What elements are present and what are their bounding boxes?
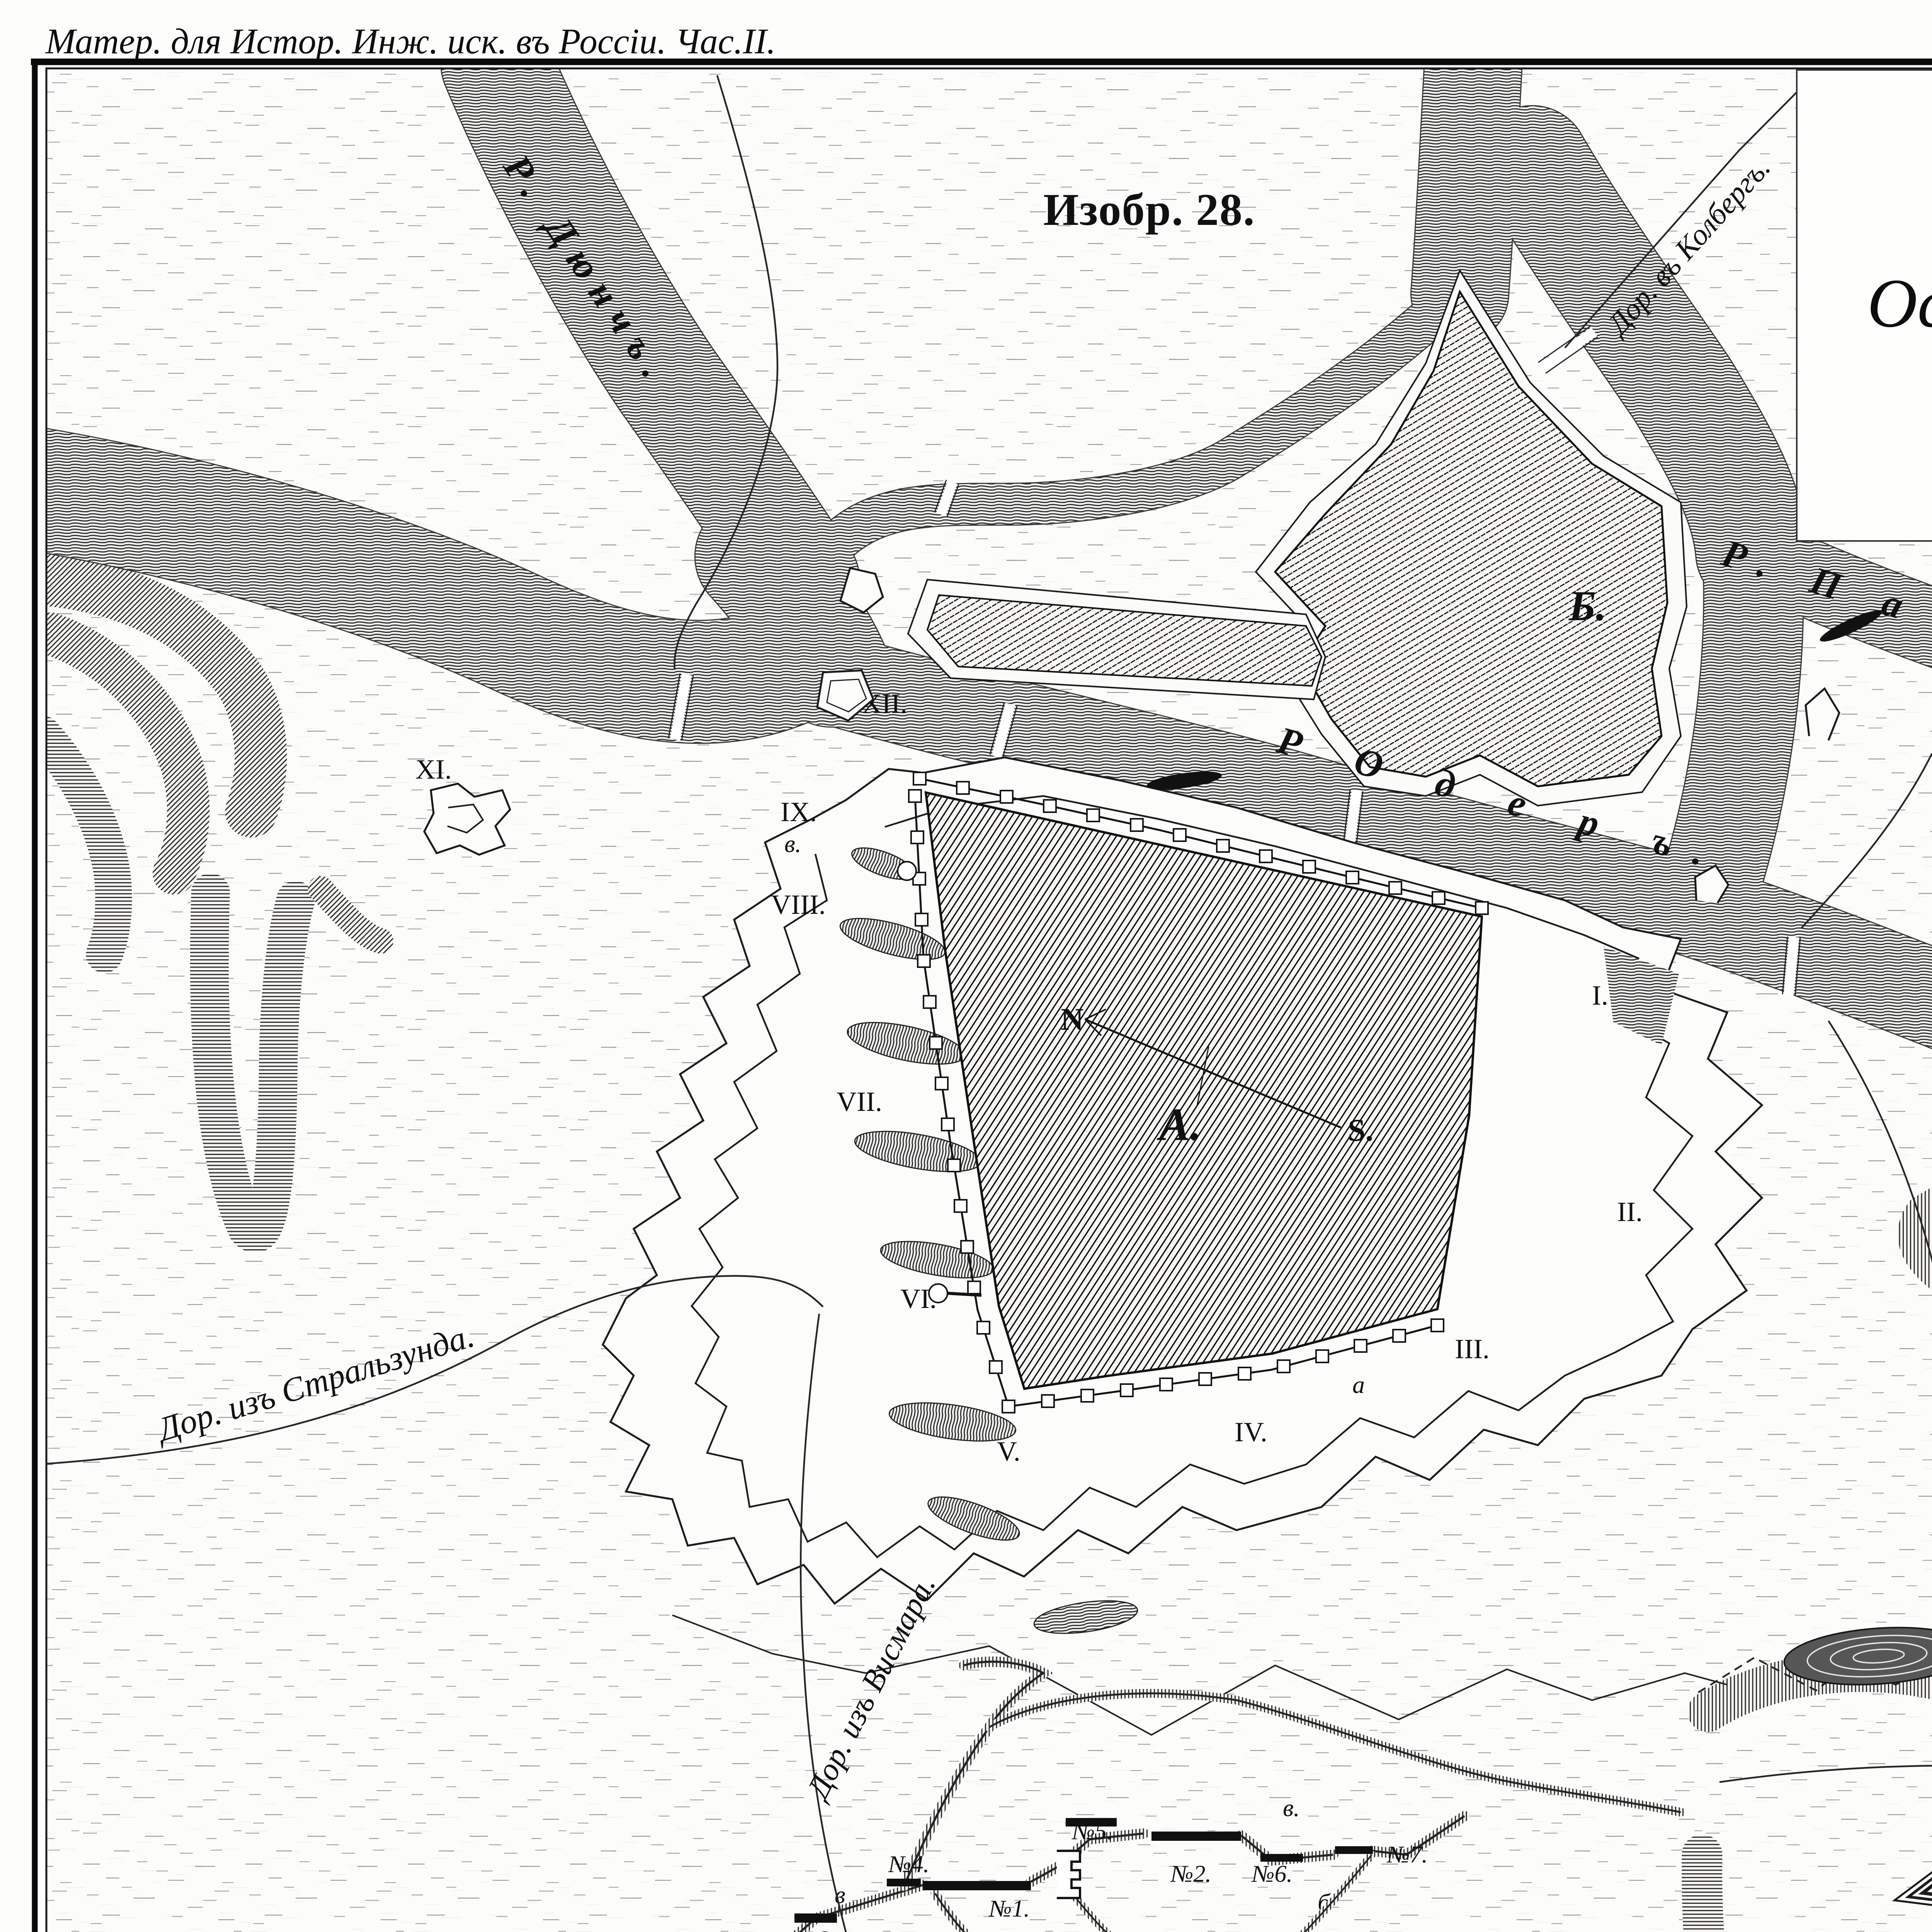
svg-text:№6.: №6. bbox=[1251, 1861, 1293, 1887]
svg-text:№4.: №4. bbox=[888, 1851, 929, 1878]
svg-text:в.: в. bbox=[784, 830, 801, 857]
svg-text:в.: в. bbox=[1283, 1794, 1300, 1821]
svg-text:II.: II. bbox=[1617, 1196, 1643, 1227]
svg-text:№3.: №3. bbox=[795, 1927, 837, 1932]
svg-text:Осады кр. Штетинъ: Осады кр. Штетинъ bbox=[1867, 265, 1932, 342]
svg-text:А.: А. bbox=[1156, 1099, 1202, 1150]
svg-text:N: N bbox=[1061, 1002, 1083, 1037]
svg-text:№1.: №1. bbox=[988, 1896, 1030, 1922]
svg-text:VII.: VII. bbox=[837, 1086, 882, 1117]
svg-text:I.: I. bbox=[1592, 980, 1608, 1011]
svg-text:а: а bbox=[1352, 1371, 1365, 1398]
svg-text:Матер. для Истор. Инж. иск. въ: Матер. для Истор. Инж. иск. въ Россіи. Ч… bbox=[45, 22, 776, 61]
svg-text:VI.: VI. bbox=[900, 1283, 937, 1314]
svg-text:XI.: XI. bbox=[415, 754, 452, 785]
svg-text:№2.: №2. bbox=[1170, 1861, 1211, 1887]
svg-text:Б.: Б. bbox=[1568, 582, 1606, 629]
svg-text:IV.: IV. bbox=[1235, 1417, 1267, 1447]
svg-text:Изобр. 28.: Изобр. 28. bbox=[1043, 184, 1255, 235]
svg-text:S.: S. bbox=[1348, 1112, 1373, 1148]
svg-text:III.: III. bbox=[1455, 1333, 1490, 1364]
svg-text:№7.: №7. bbox=[1386, 1842, 1428, 1868]
svg-text:VIII.: VIII. bbox=[771, 889, 826, 920]
svg-text:IX.: IX. bbox=[781, 796, 817, 827]
svg-text:№5.: №5. bbox=[1071, 1818, 1113, 1845]
svg-text:V.: V. bbox=[997, 1436, 1020, 1467]
